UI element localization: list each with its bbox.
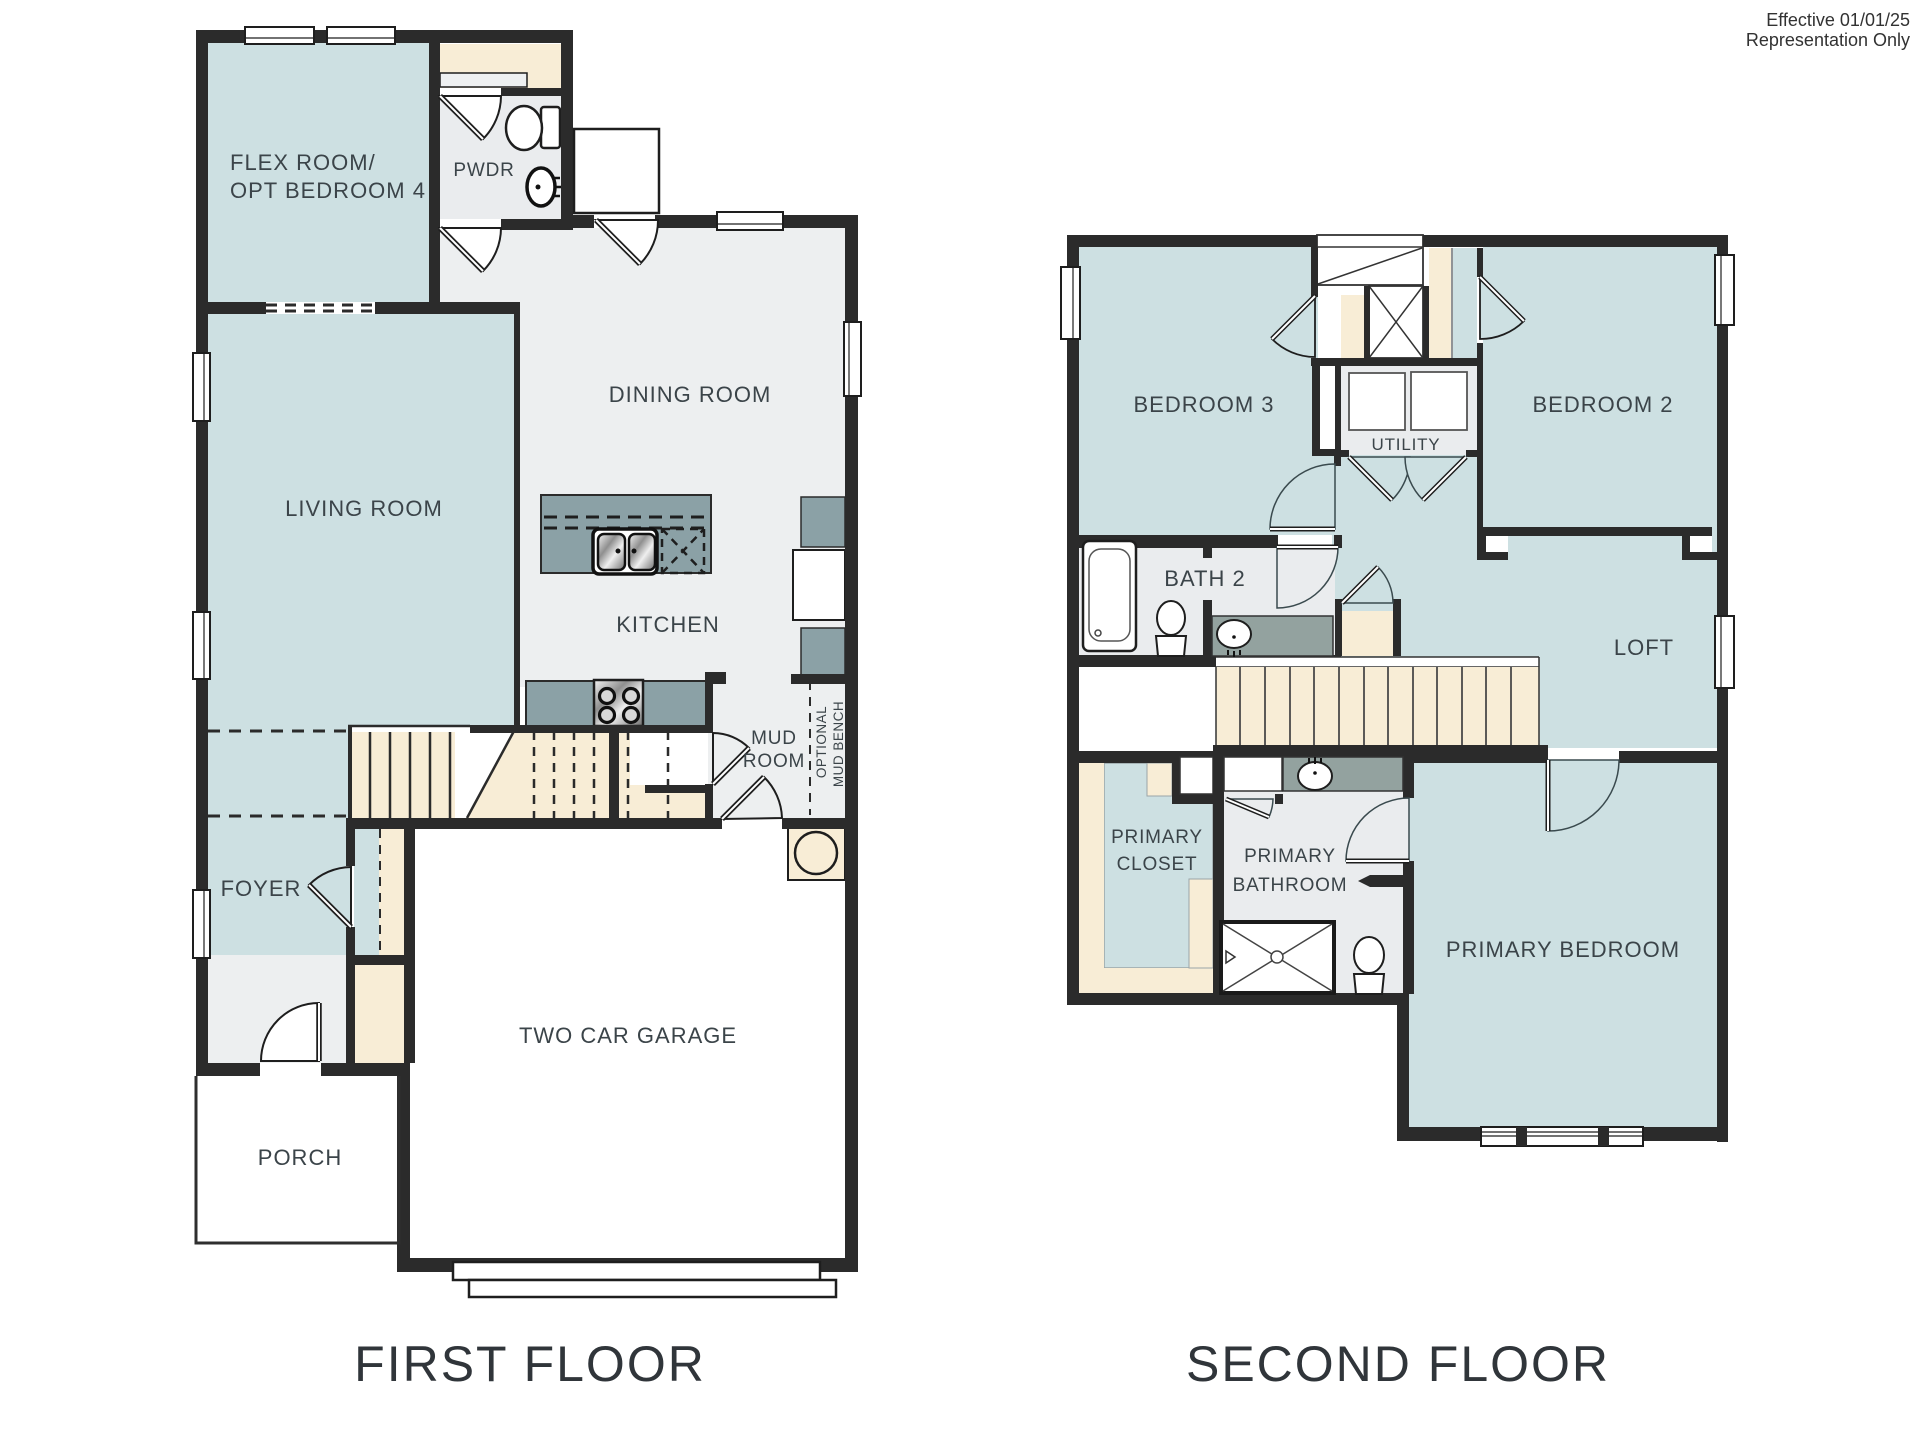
svg-text:BATH 2: BATH 2 [1164,566,1245,591]
svg-text:BEDROOM 3: BEDROOM 3 [1133,392,1274,417]
svg-text:KITCHEN: KITCHEN [616,612,720,637]
svg-text:LOFT: LOFT [1614,635,1674,660]
svg-text:OPT BEDROOM 4: OPT BEDROOM 4 [230,178,426,203]
svg-text:PWDR: PWDR [453,160,514,181]
svg-text:CLOSET: CLOSET [1117,854,1198,875]
svg-text:DINING ROOM: DINING ROOM [609,382,772,407]
svg-text:MUD: MUD [751,728,797,749]
svg-text:BATHROOM: BATHROOM [1233,875,1348,896]
svg-text:FIRST FLOOR: FIRST FLOOR [354,1336,706,1392]
svg-text:ROOM: ROOM [743,751,805,772]
svg-text:PORCH: PORCH [258,1145,342,1170]
svg-text:MUD BENCH: MUD BENCH [831,701,846,787]
svg-text:OPTIONAL: OPTIONAL [814,706,829,778]
svg-text:SECOND FLOOR: SECOND FLOOR [1186,1336,1610,1392]
svg-text:FLEX ROOM/: FLEX ROOM/ [230,150,376,175]
svg-text:BEDROOM 2: BEDROOM 2 [1532,392,1673,417]
svg-text:TWO CAR GARAGE: TWO CAR GARAGE [519,1023,737,1048]
svg-text:PRIMARY: PRIMARY [1111,827,1203,848]
svg-text:PRIMARY BEDROOM: PRIMARY BEDROOM [1446,937,1680,962]
svg-text:Representation Only: Representation Only [1746,30,1910,50]
svg-text:FOYER: FOYER [221,876,302,901]
svg-text:Effective 01/01/25: Effective 01/01/25 [1766,10,1910,30]
svg-text:UTILITY: UTILITY [1372,435,1441,454]
svg-text:PRIMARY: PRIMARY [1244,846,1336,867]
svg-text:LIVING ROOM: LIVING ROOM [285,496,443,521]
